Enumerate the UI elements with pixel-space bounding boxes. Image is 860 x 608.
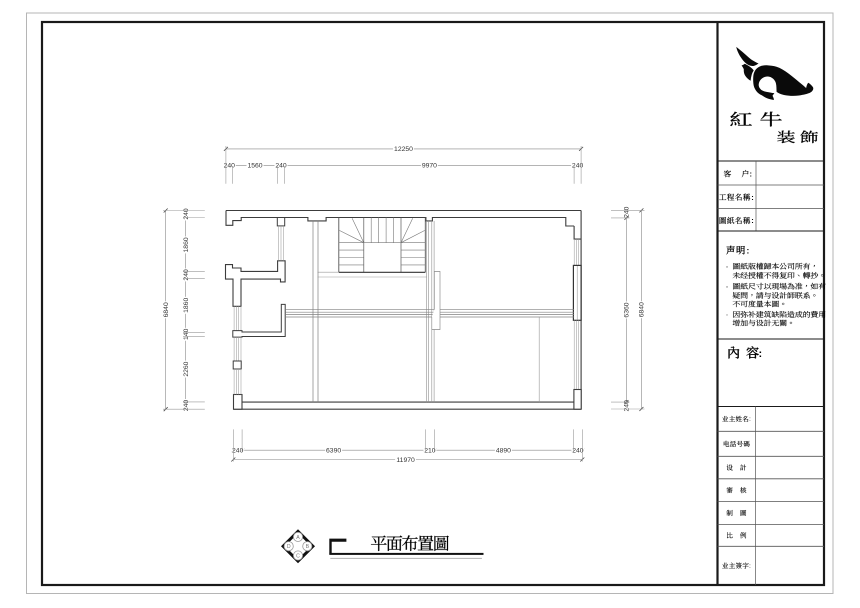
svg-text:C: C (296, 553, 300, 559)
svg-text::: : (747, 245, 750, 255)
svg-text:240: 240 (224, 163, 236, 170)
svg-text:240: 240 (183, 269, 190, 281)
svg-text:1560: 1560 (247, 163, 262, 170)
svg-text::: : (751, 193, 754, 202)
svg-text:6840: 6840 (639, 302, 646, 317)
svg-text:1860: 1860 (183, 237, 190, 252)
svg-text:240: 240 (183, 208, 190, 220)
svg-text:6360: 6360 (624, 302, 631, 317)
svg-text:9970: 9970 (422, 163, 437, 170)
svg-text:B: B (306, 544, 310, 550)
svg-text:4890: 4890 (496, 448, 511, 455)
svg-text:240: 240 (572, 163, 584, 170)
svg-text::: : (759, 348, 763, 360)
svg-text:240: 240 (624, 400, 631, 412)
svg-text:12250: 12250 (394, 146, 413, 153)
svg-text:2260: 2260 (183, 361, 190, 376)
svg-text:D: D (287, 544, 291, 550)
svg-text:240: 240 (624, 206, 631, 218)
svg-text:1860: 1860 (183, 298, 190, 313)
svg-text:6840: 6840 (163, 302, 170, 317)
svg-text:11970: 11970 (396, 457, 415, 464)
svg-text:140: 140 (183, 328, 190, 340)
svg-text:6390: 6390 (326, 448, 341, 455)
svg-text::: : (750, 169, 753, 178)
svg-text::: : (751, 216, 754, 225)
svg-text:A: A (296, 535, 300, 541)
